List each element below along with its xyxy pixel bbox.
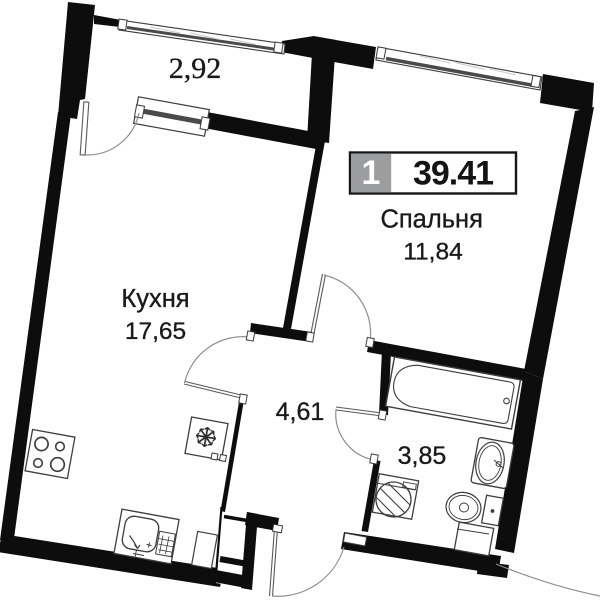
svg-text:39.41: 39.41: [413, 155, 493, 193]
svg-text:4,61: 4,61: [276, 398, 325, 426]
svg-text:17,65: 17,65: [125, 318, 186, 345]
svg-text:1: 1: [362, 154, 381, 192]
svg-text:Спальня: Спальня: [380, 206, 482, 234]
svg-text:3,85: 3,85: [398, 442, 447, 470]
svg-text:11,84: 11,84: [403, 239, 463, 266]
svg-text:Кухня: Кухня: [121, 285, 189, 313]
svg-text:2,92: 2,92: [169, 52, 222, 85]
